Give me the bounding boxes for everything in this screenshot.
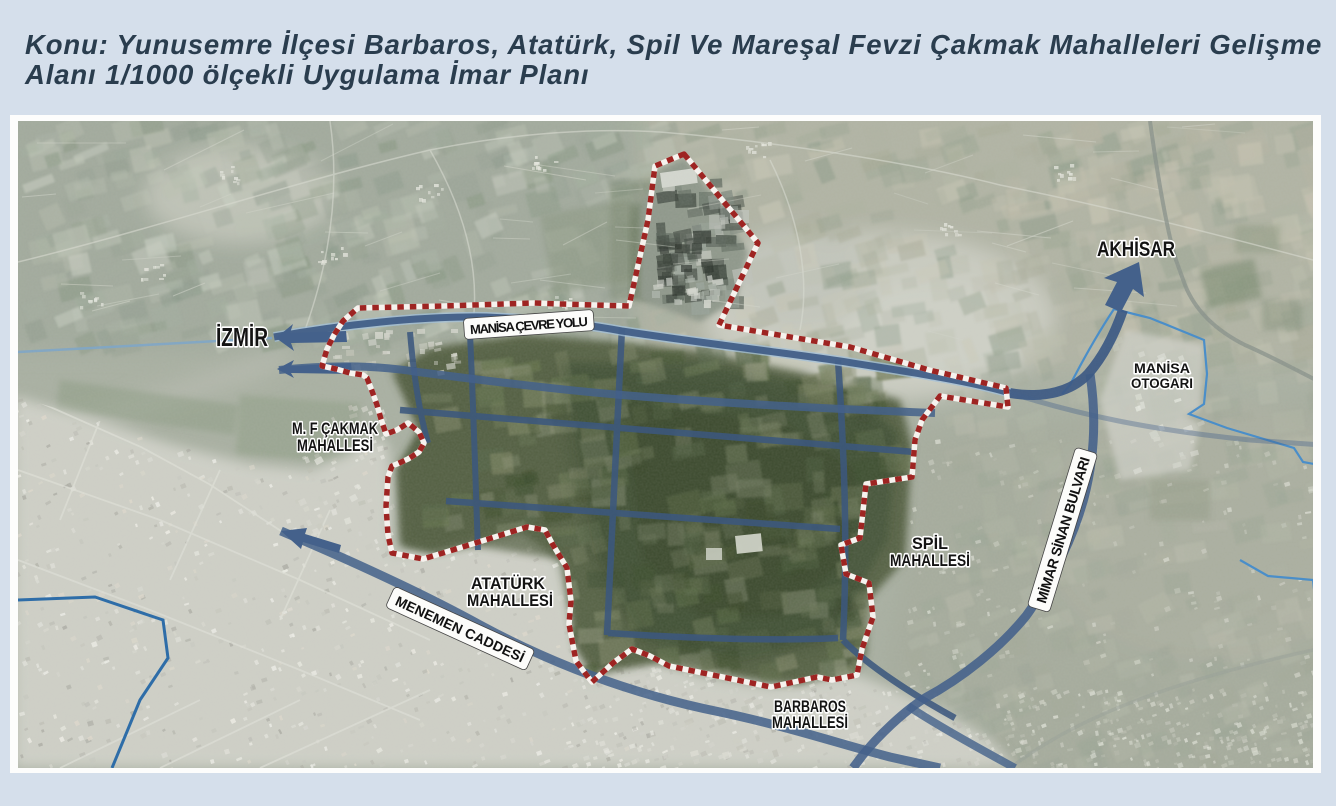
svg-text:MANİSA: MANİSA bbox=[1134, 360, 1190, 376]
svg-text:OTOGARI: OTOGARI bbox=[1131, 375, 1193, 391]
svg-text:MAHALLESİ: MAHALLESİ bbox=[297, 436, 373, 455]
svg-text:İZMİR: İZMİR bbox=[216, 322, 268, 352]
svg-text:MAHALLESİ: MAHALLESİ bbox=[772, 713, 848, 732]
svg-text:AKHİSAR: AKHİSAR bbox=[1097, 238, 1175, 261]
svg-text:MAHALLESİ: MAHALLESİ bbox=[890, 551, 970, 570]
svg-text:MAHALLESİ: MAHALLESİ bbox=[467, 591, 553, 610]
